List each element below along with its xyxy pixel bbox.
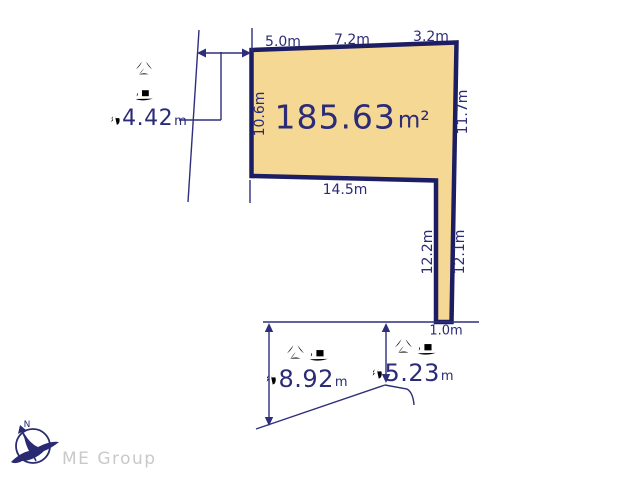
road-width-south-right-unit: m (441, 370, 454, 383)
road-width-south-left-value: 8.92 (278, 367, 333, 391)
road-label-west: 公道 (134, 59, 154, 103)
kanji-dou-icon (416, 337, 437, 358)
land-plot-diagram: N 5.0m 7.2m 3.2m 10.6m 11.7m 14.5m 12.2m… (0, 0, 640, 480)
plot-drawing: N (0, 0, 640, 480)
kanji-kou-icon (134, 59, 154, 79)
road-width-west: 約 4.42 m (109, 108, 187, 130)
road-width-south-right-value: 5.23 (384, 361, 439, 385)
road-width-west-value: 4.42 (122, 108, 173, 130)
dimension-label-top-2: 7.2m (334, 33, 370, 47)
area-label: 185.63 m² (274, 101, 429, 134)
dimension-arrow-west-road (197, 49, 251, 58)
dimension-label-strip-left: 12.2m (421, 230, 435, 275)
kanji-yaku-icon (370, 368, 383, 381)
company-logo-text: ME Group (62, 449, 157, 469)
kanji-kou-icon (393, 337, 414, 358)
kanji-yaku-icon (264, 374, 277, 387)
west-road-edge-line (188, 30, 199, 202)
kanji-dou-icon (308, 343, 329, 364)
dimension-label-right: 11.7m (456, 90, 470, 135)
compass-logo-icon: N (11, 420, 59, 463)
compass-north-label: N (24, 420, 31, 430)
road-width-west-unit: m (174, 115, 187, 128)
kanji-kou-icon (285, 343, 306, 364)
road-width-south-left: 約 8.92 m (264, 367, 347, 391)
dimension-label-strip-right: 12.1m (453, 230, 467, 275)
road-label-south-left: 公道 (285, 343, 329, 364)
dimension-label-top-3: 3.2m (413, 30, 449, 44)
dimension-label-top-1: 5.0m (265, 35, 301, 49)
dimension-label-left: 10.6m (253, 92, 267, 137)
area-unit: m² (398, 110, 430, 133)
kanji-dou-icon (134, 83, 154, 103)
road-width-south-right: 約 5.23 m (370, 361, 453, 385)
road-width-south-left-unit: m (335, 376, 348, 389)
south-road-curve-line (385, 385, 414, 405)
dimension-label-bottom: 14.5m (323, 183, 368, 197)
road-label-south-right: 公道 (393, 337, 437, 358)
kanji-yaku-icon (109, 115, 121, 127)
area-value: 185.63 (274, 101, 395, 134)
